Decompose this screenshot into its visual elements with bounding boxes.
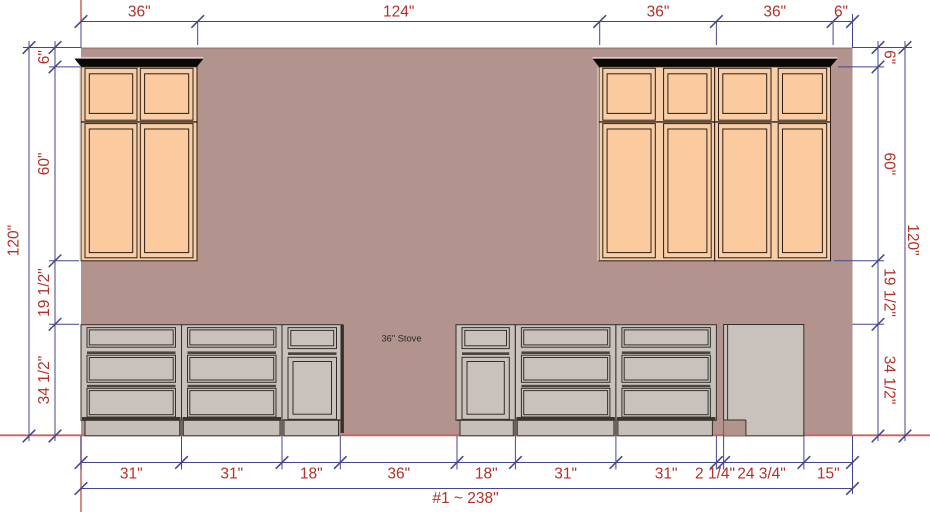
- svg-text:19 1/2": 19 1/2": [881, 268, 898, 317]
- svg-text:18": 18": [300, 466, 323, 483]
- svg-text:31": 31": [554, 466, 577, 483]
- svg-text:#1 ~ 238": #1 ~ 238": [432, 490, 498, 507]
- svg-text:15": 15": [817, 466, 840, 483]
- svg-text:124": 124": [383, 4, 414, 21]
- svg-text:120": 120": [6, 225, 23, 256]
- svg-text:60": 60": [36, 153, 53, 176]
- svg-text:31": 31": [220, 466, 243, 483]
- svg-text:36" Stove: 36" Stove: [382, 334, 422, 344]
- svg-text:19 1/2": 19 1/2": [36, 268, 53, 317]
- svg-text:24 3/4": 24 3/4": [737, 466, 786, 483]
- svg-text:18": 18": [475, 466, 498, 483]
- svg-text:36": 36": [647, 4, 670, 21]
- svg-text:36": 36": [763, 4, 786, 21]
- svg-text:31": 31": [655, 466, 678, 483]
- svg-text:60": 60": [881, 153, 898, 176]
- svg-text:36": 36": [128, 4, 151, 21]
- svg-text:6": 6": [881, 50, 898, 64]
- svg-text:34 1/2": 34 1/2": [36, 356, 53, 405]
- svg-text:6": 6": [834, 4, 848, 21]
- svg-text:36": 36": [387, 466, 410, 483]
- svg-text:120": 120": [904, 224, 921, 255]
- svg-text:34 1/2": 34 1/2": [881, 356, 898, 405]
- svg-text:6": 6": [36, 50, 53, 64]
- svg-text:2 1/4": 2 1/4": [695, 466, 735, 483]
- svg-text:31": 31": [120, 466, 143, 483]
